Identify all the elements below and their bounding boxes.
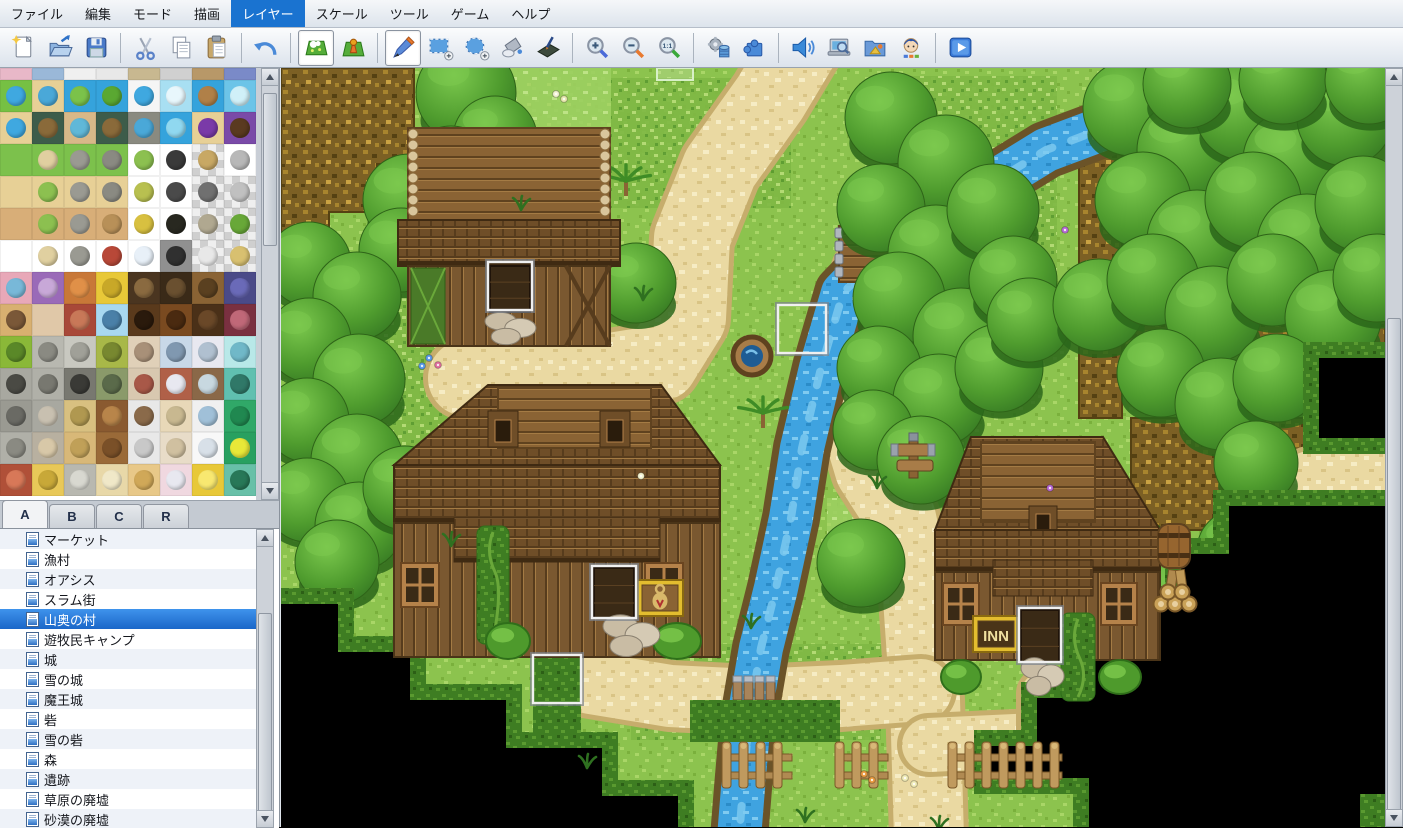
- palette-tile[interactable]: [128, 80, 160, 112]
- tile-accent: [38, 374, 58, 394]
- map-edit-area: INN: [281, 68, 1403, 827]
- tile-accent: [70, 438, 90, 458]
- map-list-item-4[interactable]: 山奥の村: [0, 609, 256, 629]
- palette-tab-b[interactable]: B: [49, 504, 95, 528]
- palette-tile[interactable]: [96, 336, 128, 368]
- tile-accent: [166, 150, 186, 170]
- sound-test-button[interactable]: [786, 31, 820, 65]
- tile-accent: [134, 406, 154, 426]
- palette-tile[interactable]: [192, 336, 224, 368]
- palette-tile[interactable]: [64, 176, 96, 208]
- palette-tile[interactable]: [0, 464, 32, 496]
- scroll-up-button[interactable]: [262, 69, 278, 86]
- palette-tile[interactable]: [192, 68, 224, 80]
- tile-accent: [230, 374, 250, 394]
- map-scrollbar[interactable]: [1385, 68, 1403, 827]
- scroll-down-button[interactable]: [1386, 809, 1402, 826]
- map-list-item-5[interactable]: 遊牧民キャンプ: [0, 629, 256, 649]
- tile-accent: [70, 310, 90, 330]
- sound-test-icon: [790, 34, 817, 61]
- map-list-item-label: 森: [44, 750, 57, 769]
- tile-accent: [166, 342, 186, 362]
- palette-tile[interactable]: [224, 68, 256, 80]
- tile-accent: [102, 214, 122, 234]
- menu-item-1[interactable]: 編集: [74, 0, 122, 27]
- map-list-item-0[interactable]: マーケット: [0, 529, 256, 549]
- tile-accent: [134, 86, 154, 106]
- palette-tile[interactable]: [192, 400, 224, 432]
- palette-tile[interactable]: [0, 240, 32, 272]
- tile-accent: [102, 342, 122, 362]
- palette-tab-r[interactable]: R: [143, 504, 189, 528]
- palette-tile[interactable]: [160, 68, 192, 80]
- menu-item-3[interactable]: 描画: [183, 0, 231, 27]
- palette-tile[interactable]: [0, 304, 32, 336]
- tile-accent: [166, 86, 186, 106]
- zoom-in-button[interactable]: [580, 31, 614, 65]
- tile-accent: [134, 310, 154, 330]
- copy-icon: [168, 34, 195, 61]
- scroll-down-button[interactable]: [257, 810, 273, 827]
- tile-accent: [198, 470, 218, 490]
- palette-tile[interactable]: [96, 68, 128, 80]
- palette-tile[interactable]: [32, 112, 64, 144]
- map-list-item-label: 雪の砦: [44, 730, 83, 749]
- palette-tile[interactable]: [0, 112, 32, 144]
- toolbar-separator: [693, 33, 694, 63]
- menu-bar: ファイル編集モード描画レイヤースケールツールゲームヘルプ: [0, 0, 1403, 28]
- open-file-icon: [47, 34, 74, 61]
- palette-tile[interactable]: [96, 304, 128, 336]
- copy-button[interactable]: [164, 31, 198, 65]
- palette-tile[interactable]: [64, 400, 96, 432]
- rect-select-button[interactable]: [423, 31, 457, 65]
- tile-accent: [102, 150, 122, 170]
- map-list-item-label: 砂漠の廃墟: [44, 810, 109, 828]
- palette-tile[interactable]: [128, 176, 160, 208]
- tile-accent: [70, 278, 90, 298]
- tile-accent: [102, 278, 122, 298]
- inn-sign-text: INN: [983, 628, 1009, 645]
- menu-item-0[interactable]: ファイル: [0, 0, 74, 27]
- tile-accent: [6, 86, 26, 106]
- flood-fill-button[interactable]: [495, 31, 529, 65]
- shadow-pen-button[interactable]: [531, 31, 565, 65]
- palette-tile[interactable]: [160, 336, 192, 368]
- scroll-down-button[interactable]: [262, 482, 278, 499]
- palette-tile[interactable]: [32, 68, 64, 80]
- toolbar-separator: [572, 33, 573, 63]
- map-document-icon: [26, 752, 39, 767]
- shadow-pen-icon: [535, 34, 562, 61]
- palette-tile[interactable]: [96, 80, 128, 112]
- palette-tile[interactable]: [0, 432, 32, 464]
- tile-accent: [70, 470, 90, 490]
- palette-tile[interactable]: [128, 304, 160, 336]
- tile-accent: [102, 310, 122, 330]
- map-list: マーケット漁村オアシススラム街山奥の村遊牧民キャンプ城雪の城魔王城砦雪の砦森遺跡…: [0, 528, 279, 828]
- palette-tile[interactable]: [192, 80, 224, 112]
- map-list-item-label: スラム街: [44, 590, 96, 609]
- palette-tile[interactable]: [224, 432, 256, 464]
- palette-tile[interactable]: [32, 464, 64, 496]
- scroll-thumb[interactable]: [1387, 318, 1401, 811]
- map-list-item-3[interactable]: スラム街: [0, 589, 256, 609]
- map-list-item-12[interactable]: 遺跡: [0, 769, 256, 789]
- palette-tile[interactable]: [0, 208, 32, 240]
- tile-accent: [134, 214, 154, 234]
- palette-tile[interactable]: [96, 464, 128, 496]
- palette-tile[interactable]: [224, 208, 256, 240]
- map-document-icon: [26, 552, 39, 567]
- plugin-manager-icon: [741, 34, 768, 61]
- tile-accent: [230, 150, 250, 170]
- tile-accent: [6, 374, 26, 394]
- toolbar-separator: [377, 33, 378, 63]
- palette-tile[interactable]: [192, 368, 224, 400]
- tile-accent: [230, 278, 250, 298]
- tile-accent: [166, 214, 186, 234]
- tile-accent: [198, 246, 218, 266]
- palette-tile[interactable]: [192, 272, 224, 304]
- palette-tile[interactable]: [32, 400, 64, 432]
- zoom-actual-icon: 1:1: [656, 34, 683, 61]
- tile-accent: [230, 86, 250, 106]
- scroll-up-button[interactable]: [257, 530, 273, 547]
- tile-accent: [38, 470, 58, 490]
- palette-tile[interactable]: [64, 272, 96, 304]
- ellipse-select-button[interactable]: [459, 31, 493, 65]
- palette-tile[interactable]: [96, 272, 128, 304]
- tile-accent: [38, 214, 58, 234]
- tile-accent: [6, 118, 26, 138]
- save-file-icon: [83, 34, 110, 61]
- palette-tile[interactable]: [224, 336, 256, 368]
- rect-select-icon: [427, 34, 454, 61]
- palette-tile[interactable]: [96, 176, 128, 208]
- tile-accent: [166, 182, 186, 202]
- palette-tile[interactable]: [224, 400, 256, 432]
- tile-accent: [38, 438, 58, 458]
- palette-tile[interactable]: [128, 240, 160, 272]
- palette-tile[interactable]: [96, 112, 128, 144]
- palette-tile[interactable]: [128, 144, 160, 176]
- palette-tile[interactable]: [64, 240, 96, 272]
- palette-tile[interactable]: [32, 144, 64, 176]
- palette-tile[interactable]: [192, 208, 224, 240]
- tile-accent: [6, 278, 26, 298]
- zoom-out-icon: [620, 34, 647, 61]
- tile-accent: [70, 150, 90, 170]
- palette-tile[interactable]: [192, 112, 224, 144]
- palette-tile[interactable]: [160, 144, 192, 176]
- map-document-icon: [26, 632, 39, 647]
- map-list-item-label: 漁村: [44, 550, 70, 569]
- palette-tile[interactable]: [96, 400, 128, 432]
- palette-tile[interactable]: [64, 208, 96, 240]
- scroll-thumb[interactable]: [258, 613, 272, 812]
- palette-tile[interactable]: [128, 68, 160, 80]
- map-mode-icon: [303, 34, 330, 61]
- tileset-grid[interactable]: [0, 68, 256, 500]
- tile-selection-cursor: [657, 68, 693, 80]
- map-document-icon: [26, 772, 39, 787]
- palette-tile[interactable]: [128, 336, 160, 368]
- toolbar-separator: [935, 33, 936, 63]
- palette-tile[interactable]: [64, 336, 96, 368]
- toolbar-separator: [778, 33, 779, 63]
- palette-tile[interactable]: [160, 176, 192, 208]
- map-list-item-7[interactable]: 雪の城: [0, 669, 256, 689]
- menu-item-5[interactable]: スケール: [305, 0, 379, 27]
- zoom-out-button[interactable]: [616, 31, 650, 65]
- toolbar-separator: [241, 33, 242, 63]
- toolbar-separator: [120, 33, 121, 63]
- cut-button[interactable]: [128, 31, 162, 65]
- tileset-palette[interactable]: [0, 68, 279, 500]
- palette-tile[interactable]: [128, 272, 160, 304]
- map-mode-button[interactable]: [298, 30, 334, 66]
- palette-tile[interactable]: [224, 176, 256, 208]
- map-list-item-1[interactable]: 漁村: [0, 549, 256, 569]
- palette-tile[interactable]: [192, 304, 224, 336]
- palette-tile[interactable]: [128, 432, 160, 464]
- new-file-button[interactable]: [7, 31, 41, 65]
- palette-tile[interactable]: [160, 272, 192, 304]
- palette-tile[interactable]: [160, 464, 192, 496]
- tile-accent: [134, 150, 154, 170]
- palette-tile[interactable]: [64, 304, 96, 336]
- map-canvas[interactable]: INN: [281, 68, 1385, 827]
- map-list-item-6[interactable]: 城: [0, 649, 256, 669]
- palette-tile[interactable]: [64, 368, 96, 400]
- palette-tile[interactable]: [32, 208, 64, 240]
- tile-accent: [6, 470, 26, 490]
- scroll-thumb[interactable]: [263, 93, 277, 246]
- tile-accent: [38, 150, 58, 170]
- palette-tile[interactable]: [0, 144, 32, 176]
- event-mode-button[interactable]: [336, 31, 370, 65]
- palette-tile[interactable]: [224, 112, 256, 144]
- map-list-item-2[interactable]: オアシス: [0, 569, 256, 589]
- palette-tile[interactable]: [0, 176, 32, 208]
- menu-item-4[interactable]: レイヤー: [231, 0, 305, 27]
- palette-tile[interactable]: [0, 368, 32, 400]
- palette-tab-c[interactable]: C: [96, 504, 142, 528]
- tile-accent: [102, 406, 122, 426]
- map-document-icon: [26, 792, 39, 807]
- palette-tile[interactable]: [32, 304, 64, 336]
- palette-tile[interactable]: [96, 144, 128, 176]
- tile-accent: [166, 278, 186, 298]
- palette-tile[interactable]: [128, 464, 160, 496]
- tile-accent: [198, 438, 218, 458]
- arrow-up-icon: [266, 74, 274, 80]
- database-button[interactable]: [701, 31, 735, 65]
- tile-accent: [134, 342, 154, 362]
- palette-tile[interactable]: [32, 176, 64, 208]
- palette-tile[interactable]: [192, 432, 224, 464]
- scroll-up-button[interactable]: [1386, 69, 1402, 86]
- palette-tile[interactable]: [160, 80, 192, 112]
- event-searcher-button[interactable]: [822, 31, 856, 65]
- arrow-up-icon: [1390, 74, 1398, 80]
- palette-tile[interactable]: [160, 432, 192, 464]
- plugin-manager-button[interactable]: [737, 31, 771, 65]
- palette-tile[interactable]: [160, 304, 192, 336]
- tile-accent: [134, 470, 154, 490]
- palette-tile[interactable]: [32, 368, 64, 400]
- undo-button[interactable]: [249, 31, 283, 65]
- palette-tile[interactable]: [32, 432, 64, 464]
- map-list-item-9[interactable]: 砦: [0, 709, 256, 729]
- palette-tile[interactable]: [0, 80, 32, 112]
- palette-tile[interactable]: [224, 272, 256, 304]
- palette-tile[interactable]: [128, 112, 160, 144]
- map-document-icon: [26, 712, 39, 727]
- palette-tile[interactable]: [0, 400, 32, 432]
- palette-tile[interactable]: [96, 240, 128, 272]
- save-file-button[interactable]: [79, 31, 113, 65]
- map-document-icon: [26, 692, 39, 707]
- map-list-item-label: 魔王城: [44, 690, 83, 709]
- palette-tile[interactable]: [64, 112, 96, 144]
- open-file-button[interactable]: [43, 31, 77, 65]
- map-list-item-11[interactable]: 森: [0, 749, 256, 769]
- palette-tile[interactable]: [160, 368, 192, 400]
- map-list-item-8[interactable]: 魔王城: [0, 689, 256, 709]
- tile-accent: [198, 278, 218, 298]
- palette-tile[interactable]: [224, 304, 256, 336]
- shop-house: [394, 385, 720, 657]
- palette-tile[interactable]: [0, 68, 32, 80]
- palette-tile[interactable]: [64, 464, 96, 496]
- map-list-scrollbar[interactable]: [256, 529, 274, 828]
- palette-tile[interactable]: [128, 208, 160, 240]
- tile-accent: [70, 214, 90, 234]
- palette-tile[interactable]: [160, 208, 192, 240]
- paste-button[interactable]: [200, 31, 234, 65]
- tile-accent: [166, 438, 186, 458]
- undo-icon: [253, 34, 280, 61]
- map-list-item-13[interactable]: 草原の廃墟: [0, 789, 256, 809]
- map-list-item-label: 城: [44, 650, 57, 669]
- resource-manager-button[interactable]: [858, 31, 892, 65]
- palette-tile[interactable]: [160, 112, 192, 144]
- flood-fill-icon: [499, 34, 526, 61]
- menu-item-7[interactable]: ゲーム: [440, 0, 501, 27]
- palette-tile[interactable]: [224, 80, 256, 112]
- palette-tile[interactable]: [32, 272, 64, 304]
- tile-accent: [38, 86, 58, 106]
- tile-accent: [102, 246, 122, 266]
- arrow-down-icon: [261, 816, 269, 822]
- palette-tile[interactable]: [192, 176, 224, 208]
- zoom-actual-button[interactable]: 1:1: [652, 31, 686, 65]
- arrow-down-icon: [266, 488, 274, 494]
- paste-icon: [204, 34, 231, 61]
- pencil-icon: [390, 34, 417, 61]
- tile-accent: [166, 118, 186, 138]
- palette-tile[interactable]: [96, 368, 128, 400]
- palette-tile[interactable]: [32, 80, 64, 112]
- palette-tile[interactable]: [224, 368, 256, 400]
- tile-accent: [6, 342, 26, 362]
- tile-accent: [198, 214, 218, 234]
- pencil-button[interactable]: [385, 30, 421, 66]
- palette-tile[interactable]: [64, 68, 96, 80]
- palette-tile[interactable]: [64, 432, 96, 464]
- palette-tile[interactable]: [192, 144, 224, 176]
- tile-accent: [134, 374, 154, 394]
- tile-accent: [230, 470, 250, 490]
- palette-tile[interactable]: [128, 400, 160, 432]
- palette-tile[interactable]: [192, 240, 224, 272]
- map-document-icon: [26, 572, 39, 587]
- tile-accent: [134, 182, 154, 202]
- map-list-item-14[interactable]: 砂漠の廃墟: [0, 809, 256, 828]
- palette-tile[interactable]: [160, 400, 192, 432]
- palette-tab-a[interactable]: A: [2, 500, 48, 528]
- palette-tile[interactable]: [32, 240, 64, 272]
- map-document-icon: [26, 732, 39, 747]
- map-document-icon: [26, 592, 39, 607]
- palette-tile[interactable]: [32, 336, 64, 368]
- menu-item-8[interactable]: ヘルプ: [500, 0, 561, 27]
- map-list-item-label: 砦: [44, 710, 57, 729]
- left-panel: ABCR マーケット漁村オアシススラム街山奥の村遊牧民キャンプ城雪の城魔王城砦雪…: [0, 68, 280, 827]
- map-list-item-label: マーケット: [44, 530, 109, 549]
- palette-tile[interactable]: [160, 240, 192, 272]
- map-list-rows: マーケット漁村オアシススラム街山奥の村遊牧民キャンプ城雪の城魔王城砦雪の砦森遺跡…: [0, 529, 256, 828]
- palette-tile[interactable]: [96, 208, 128, 240]
- palette-tile[interactable]: [224, 144, 256, 176]
- palette-tile[interactable]: [224, 464, 256, 496]
- tile-accent: [38, 246, 58, 266]
- palette-tile[interactable]: [128, 368, 160, 400]
- menu-item-6[interactable]: ツール: [379, 0, 440, 27]
- map-list-item-label: 遺跡: [44, 770, 70, 789]
- playtest-button[interactable]: [943, 31, 977, 65]
- tile-accent: [70, 118, 90, 138]
- palette-tile[interactable]: [0, 336, 32, 368]
- tile-accent: [198, 310, 218, 330]
- palette-scrollbar[interactable]: [261, 68, 279, 500]
- menu-item-2[interactable]: モード: [122, 0, 183, 27]
- zoom-in-icon: [584, 34, 611, 61]
- map-list-item-label: 草原の廃墟: [44, 790, 109, 809]
- palette-tile[interactable]: [0, 272, 32, 304]
- tile-accent: [230, 310, 250, 330]
- map-list-item-10[interactable]: 雪の砦: [0, 729, 256, 749]
- tile-accent: [70, 182, 90, 202]
- toolbar-separator: [290, 33, 291, 63]
- palette-tile[interactable]: [96, 432, 128, 464]
- tile-accent: [70, 406, 90, 426]
- palette-tile[interactable]: [192, 464, 224, 496]
- tile-accent: [134, 118, 154, 138]
- palette-tile[interactable]: [64, 144, 96, 176]
- tile-accent: [102, 470, 122, 490]
- tile-accent: [102, 374, 122, 394]
- palette-tile[interactable]: [224, 240, 256, 272]
- map-document-icon: [26, 532, 39, 547]
- character-generator-button[interactable]: [894, 31, 928, 65]
- map-list-item-label: 雪の城: [44, 670, 83, 689]
- tile-accent: [70, 86, 90, 106]
- palette-tile[interactable]: [64, 80, 96, 112]
- map-list-item-label: オアシス: [44, 570, 95, 589]
